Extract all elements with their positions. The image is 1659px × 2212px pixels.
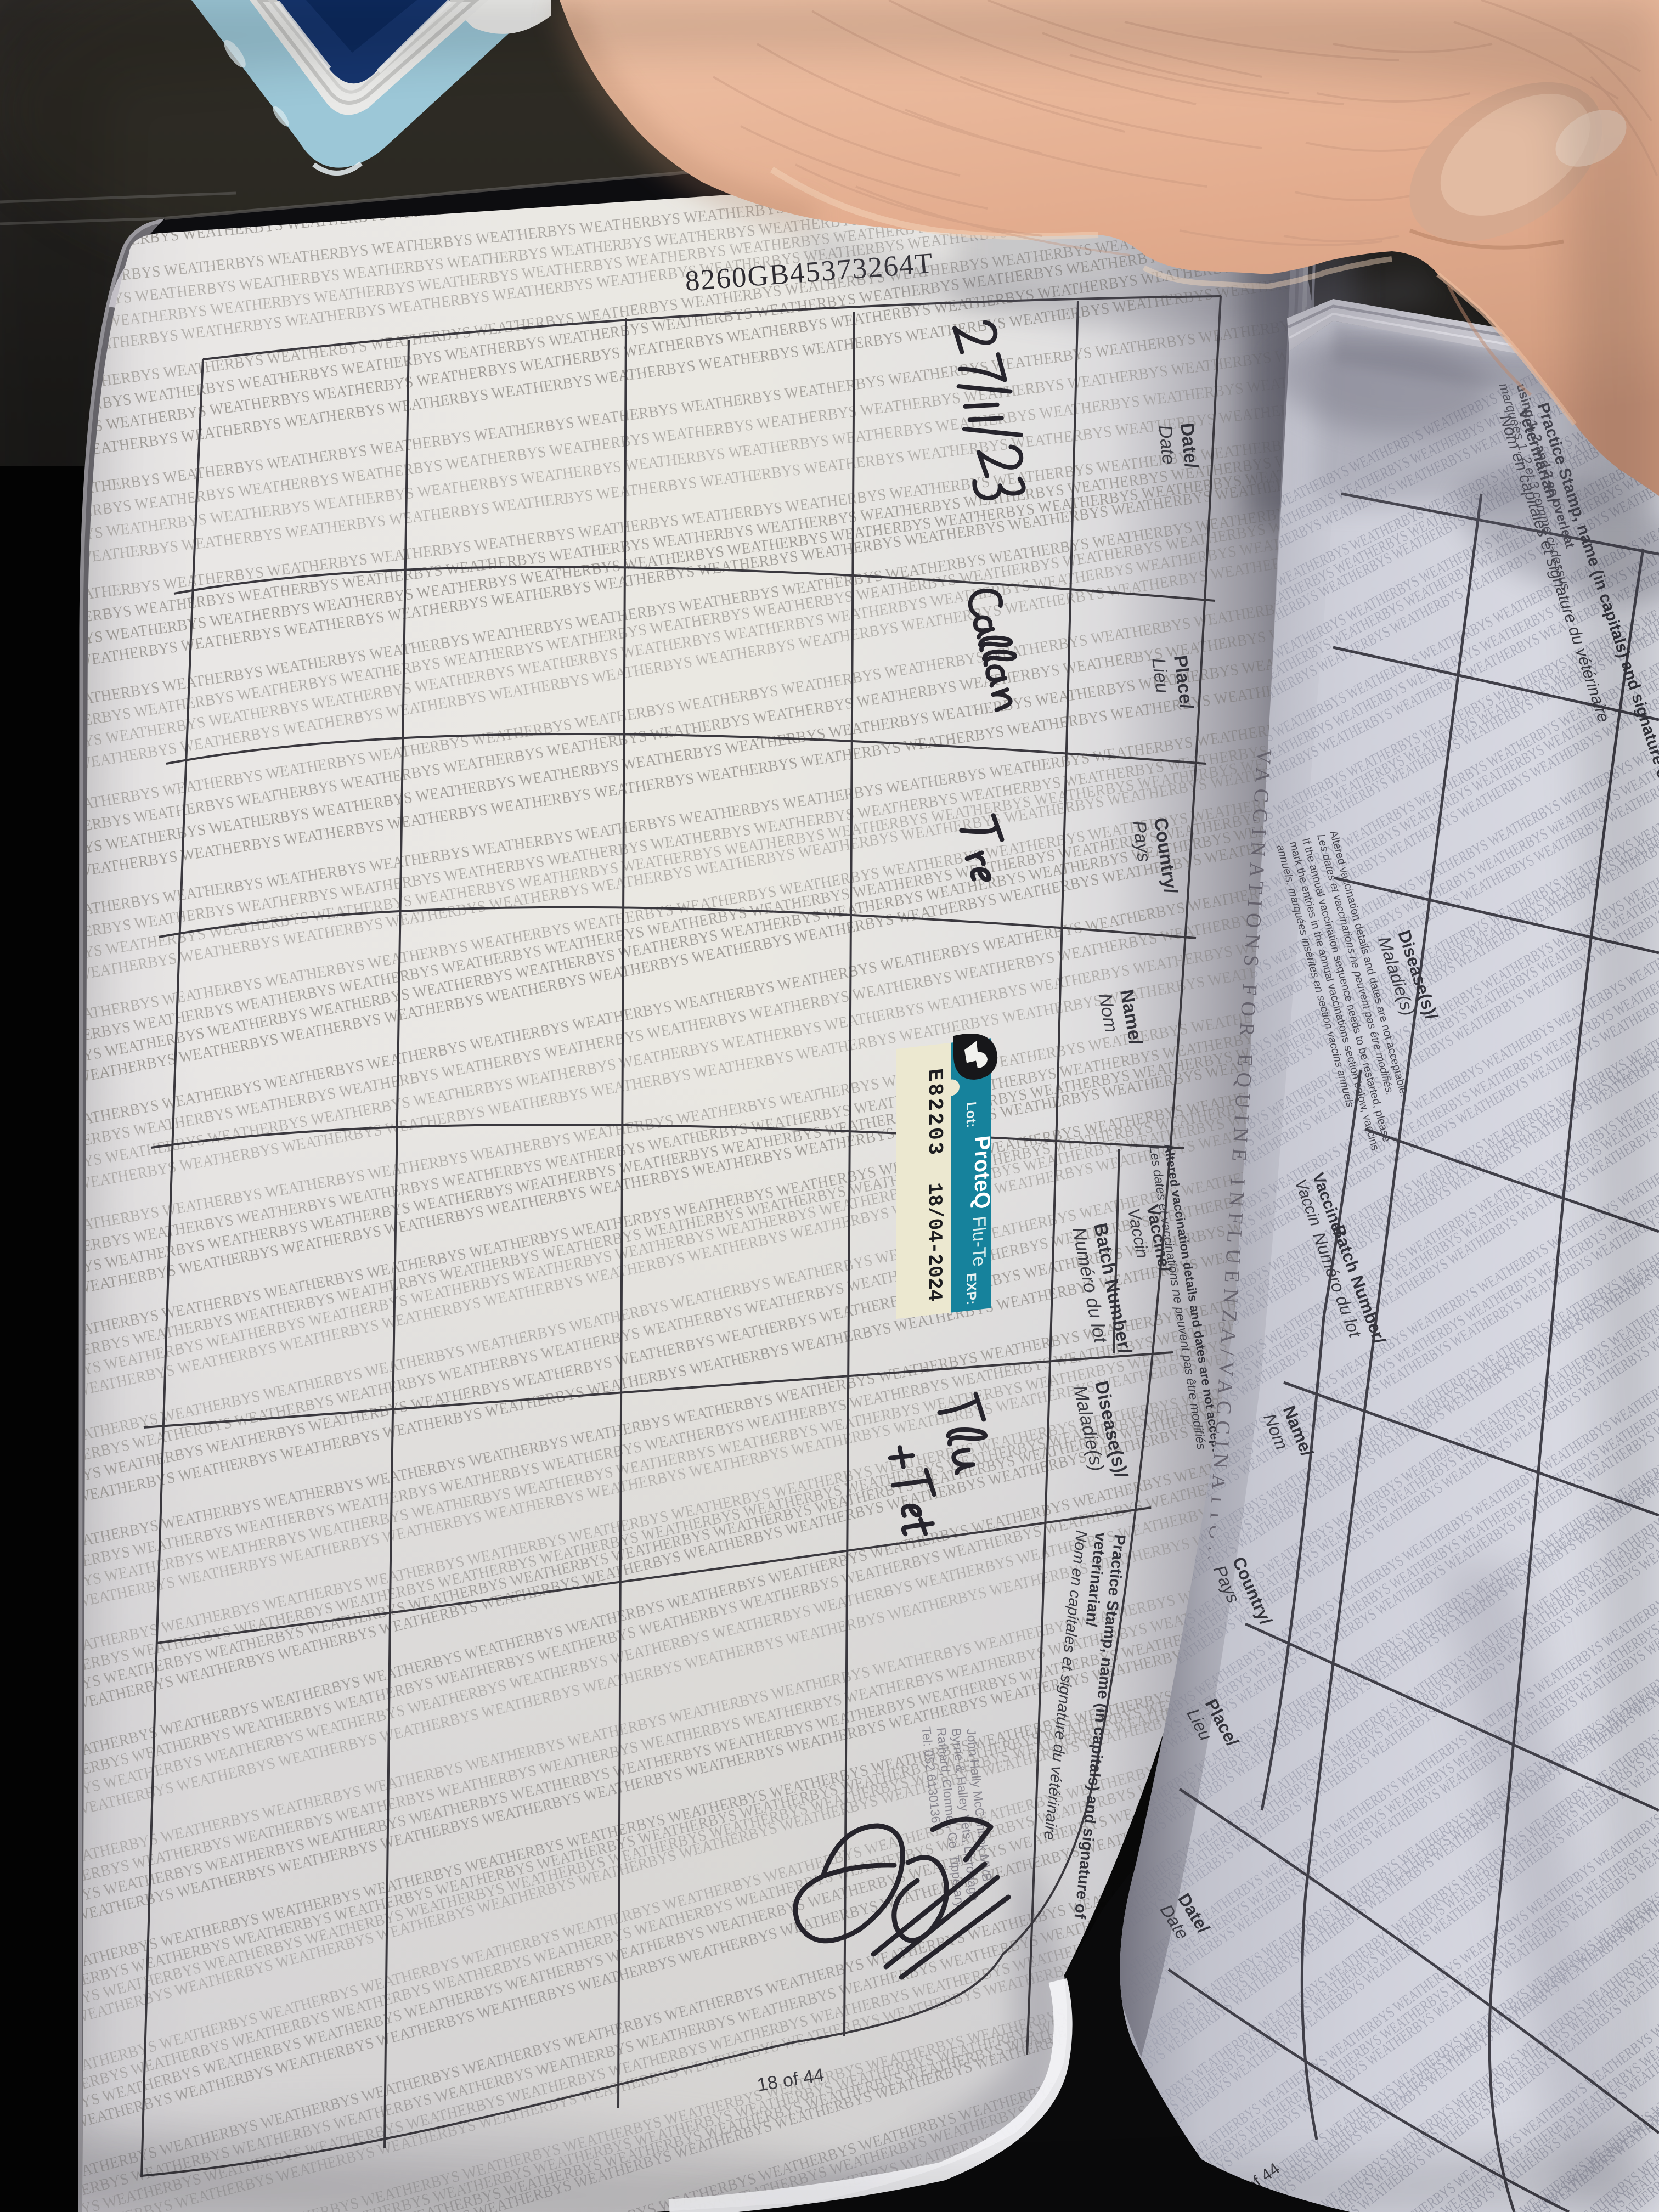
svg-text:EXP:: EXP: [963,1272,979,1306]
svg-text:18/04-2024: 18/04-2024 [923,1182,946,1303]
svg-text:Date: Date [1154,424,1179,465]
svg-text:E82203: E82203 [923,1068,946,1159]
svg-text:Flu-Te: Flu-Te [969,1215,989,1268]
svg-text:ProteQ: ProteQ [970,1135,995,1210]
svg-text:Lot:: Lot: [963,1101,979,1128]
svg-text:Lieu: Lieu [1148,657,1173,695]
